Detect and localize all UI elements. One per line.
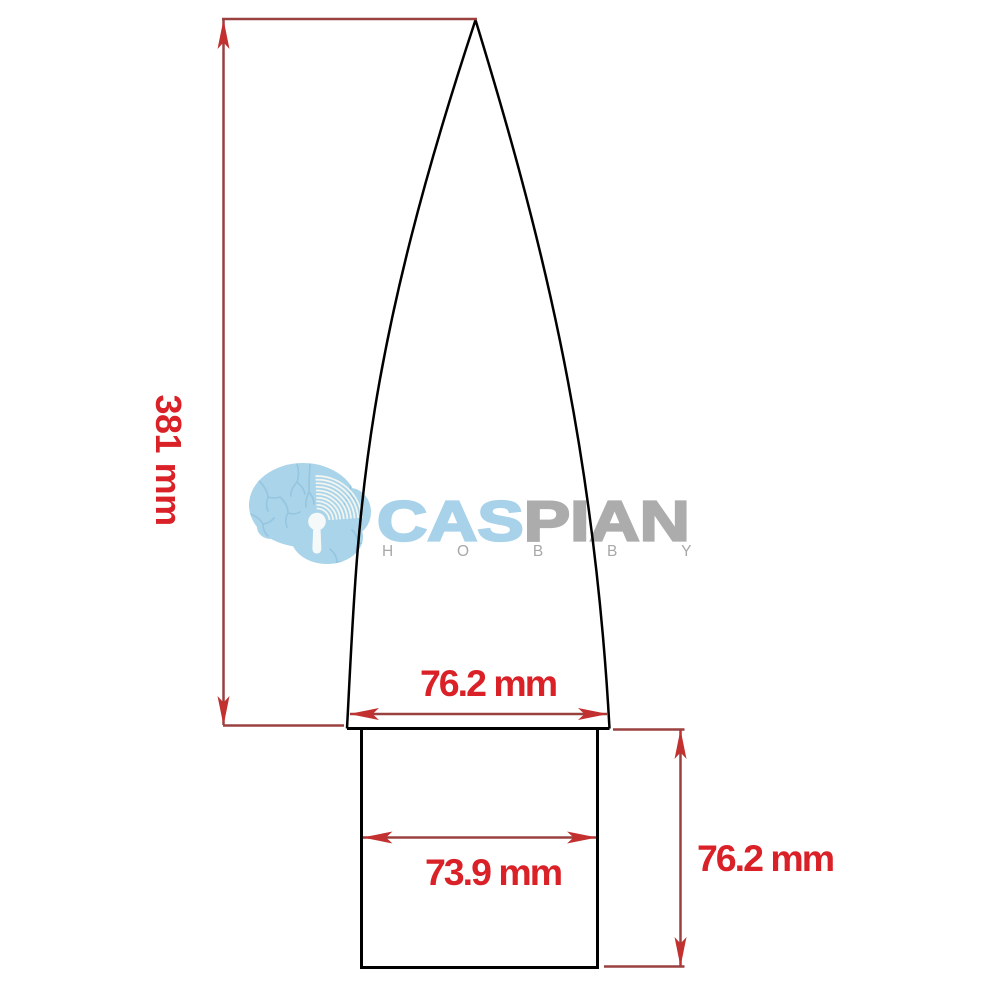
svg-text:HOBBY: HOBBY	[382, 543, 755, 560]
svg-text:73.9 mm: 73.9 mm	[425, 851, 562, 893]
svg-text:76.2 mm: 76.2 mm	[697, 837, 834, 879]
svg-text:381 mm: 381 mm	[148, 395, 189, 526]
svg-text:76.2 mm: 76.2 mm	[420, 662, 557, 704]
